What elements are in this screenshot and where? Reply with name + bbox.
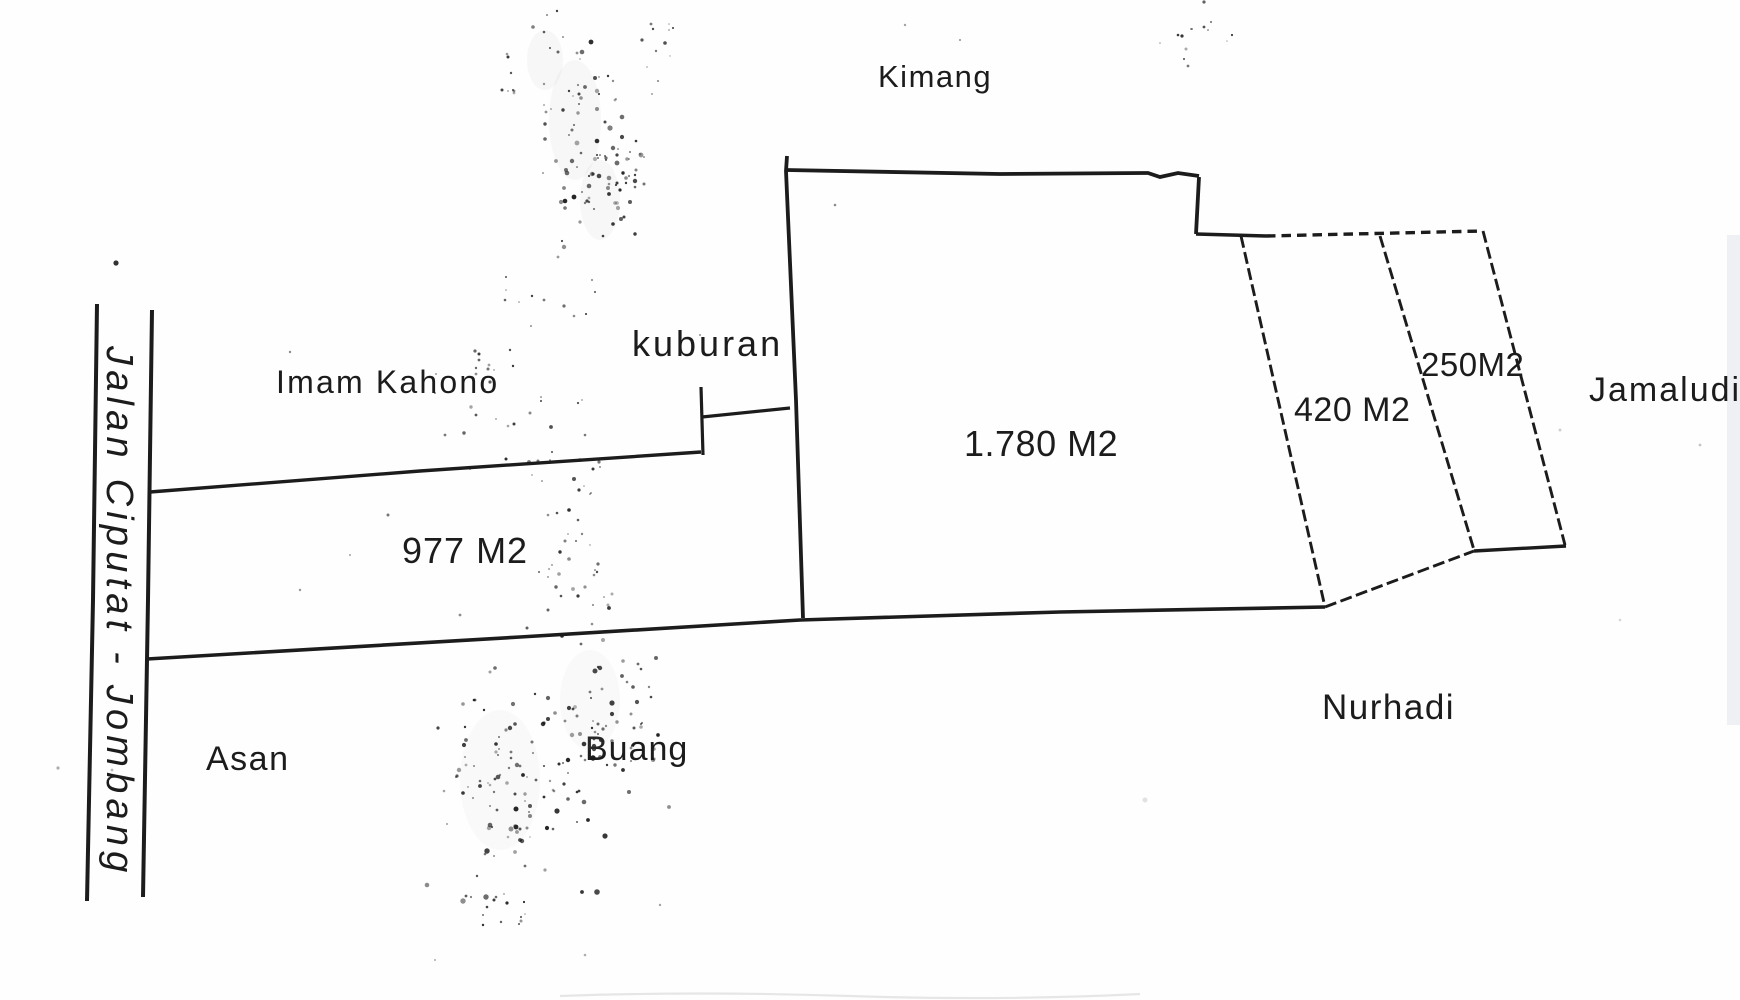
svg-text:Asan: Asan xyxy=(206,740,290,778)
svg-text:kuburan: kuburan xyxy=(632,323,783,364)
svg-text:Jamaludin: Jamaludin xyxy=(1589,371,1740,409)
svg-text:977 M2: 977 M2 xyxy=(402,530,528,571)
svg-text:Nurhadi: Nurhadi xyxy=(1322,688,1455,727)
svg-text:Kimang: Kimang xyxy=(878,59,992,94)
svg-text:Imam Kahono: Imam Kahono xyxy=(276,364,499,400)
svg-text:250M2: 250M2 xyxy=(1421,346,1524,383)
svg-text:Jalan Ciputat - Jombang: Jalan Ciputat - Jombang xyxy=(98,345,140,878)
svg-text:1.780 M2: 1.780 M2 xyxy=(964,423,1118,464)
svg-text:420 M2: 420 M2 xyxy=(1294,391,1410,429)
